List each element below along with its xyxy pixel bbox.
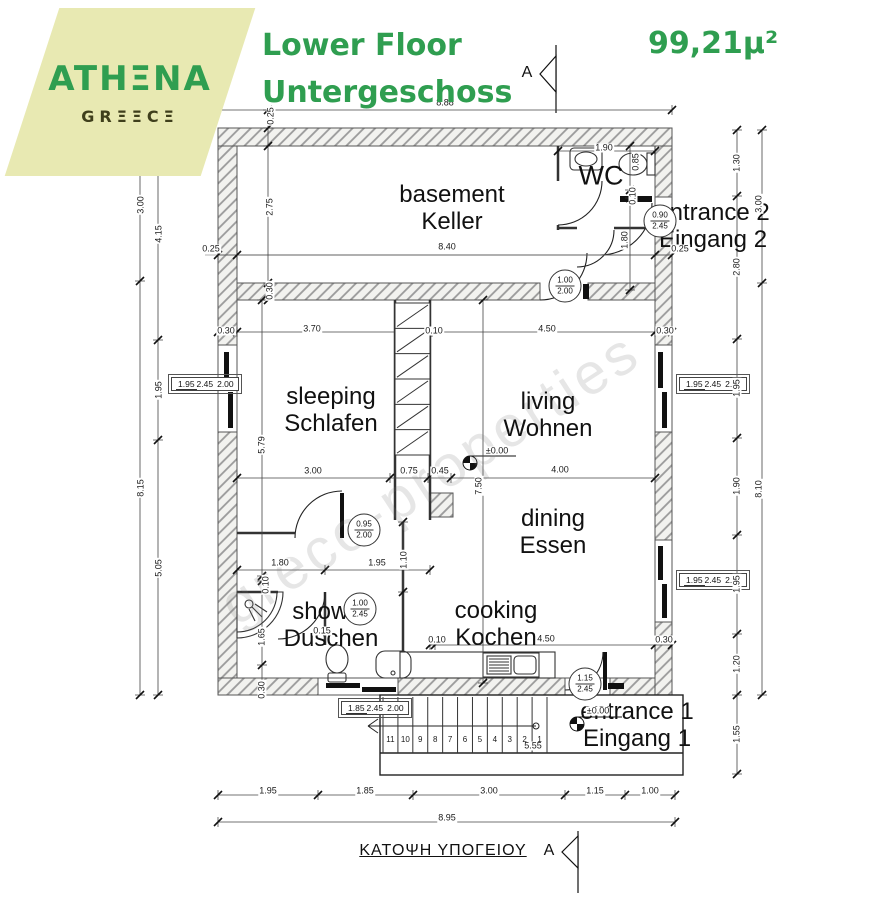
logo-title: ATHΞNA [48,59,212,99]
dim-label: 1.15 [585,787,605,796]
stair-step-number: 4 [492,736,498,744]
dim-label: 1.95 [155,380,164,400]
dim-label: 4.50 [536,635,556,644]
drawing-caption: ΚΑΤΟΨΗ ΥΠΟΓΕΙΟΥ [359,842,526,860]
door-label-hall: 1.002.00 [549,270,582,303]
dim-label: 5.05 [155,558,164,578]
dim-label: 0.10 [427,636,447,645]
page-title-en: Lower Floor [262,28,462,63]
dim-label: 5.79 [258,435,267,455]
dim-label: 1.00 [640,787,660,796]
room-sleeping: sleepingSchlafen [284,383,377,437]
dim-label: 0.10 [424,327,444,336]
dim-label: 4.50 [537,325,557,334]
dim-label: 1.55 [733,724,742,744]
floorplan-canvas: greco-properties ATHΞNA GRΞΞCΞ Lower Flo… [0,0,870,909]
dim-label: 1.80 [270,559,290,568]
dim-label: 1.65 [258,627,267,647]
door-label-entrance1: 1.152.45 [569,668,602,701]
dim-label: 0.45 [430,467,450,476]
bath-sink [376,651,411,678]
dim-label: 8.95 [437,814,457,823]
door-label-sleeping: 0.952.00 [348,514,381,547]
dim-label: 2.80 [733,257,742,277]
door-label-entrance2: 0.902.45 [644,205,677,238]
dim-label: 0.15 [312,627,332,636]
dim-label: 1.80 [621,230,630,250]
dim-label: 2.75 [266,197,275,217]
dim-label: 0.10 [262,575,271,595]
dim-label: 0.30 [655,327,675,336]
section-letter-bottom: A [544,842,555,860]
dim-label: 0.30 [266,281,275,301]
dim-label: 3.00 [137,195,146,215]
dim-label: 0.25 [670,245,690,254]
dim-label: 8.15 [137,478,146,498]
dim-label: 0.30 [216,327,236,336]
stair-step-number: 5 [477,736,483,744]
page-title-de: Untergeschoss [262,75,512,110]
door-label-shower: 1.002.45 [344,593,377,626]
room-living: livingWohnen [504,388,593,442]
dim-label: 4.15 [155,224,164,244]
dim-label: 1.10 [400,550,409,570]
room-cooking: cookingKochen [455,597,538,651]
section-marker-bottom [562,831,578,893]
dim-label: 1.90 [733,476,742,496]
stair-step-number: 1 [536,736,542,744]
logo-subtitle: GRΞΞCΞ [81,107,179,126]
dim-label: 8.40 [437,243,457,252]
dim-label: ±0.00 [586,707,610,716]
dim-label: 1.95 [733,574,742,594]
stair-step-number: 3 [507,736,513,744]
dim-label: 3.00 [479,787,499,796]
area-value: 99,21μ² [648,26,778,61]
dim-label: ±0.00 [485,447,509,456]
stair-step-number: 10 [400,736,411,744]
stair-step-number: 6 [462,736,468,744]
room-wc: WC [579,163,624,190]
dim-label: 7.50 [475,476,484,496]
dim-label: 3.00 [755,194,764,214]
dim-label: 0.85 [632,152,641,172]
logo: ATHΞNA GRΞΞCΞ [5,8,256,176]
dim-label: 8.10 [755,479,764,499]
window-label-sleeping: 1.952.45 2.00 [171,377,239,391]
dim-label: 1.85 [355,787,375,796]
stair-step-number: 2 [521,736,527,744]
dim-label: 1.95 [733,378,742,398]
dim-label: 1.20 [733,654,742,674]
dim-label: 0.30 [654,636,674,645]
stair-step-number: 11 [385,736,395,744]
dim-label: 0.25 [201,245,221,254]
dim-label: 1.90 [594,144,614,153]
dim-label: 3.00 [303,467,323,476]
dim-label: 3.70 [302,325,322,334]
dim-label: 0.30 [258,680,267,700]
dim-label: 1.95 [367,559,387,568]
stair-step-number: 7 [447,736,453,744]
dim-label: 0.75 [399,467,419,476]
dim-label: 0.10 [629,186,638,206]
dim-label: 4.00 [550,466,570,475]
section-marker-top [540,45,556,113]
dim-label: 1.30 [733,153,742,173]
stair-step-number: 8 [432,736,438,744]
room-dining: diningEssen [520,505,587,559]
window-label-bath: 1.852.45 2.00 [341,701,409,715]
stair-arrow [368,719,539,733]
section-letter-top: A [522,64,533,82]
dim-label: 1.95 [258,787,278,796]
room-basement: basementKeller [399,181,504,235]
stair-step-number: 9 [417,736,423,744]
